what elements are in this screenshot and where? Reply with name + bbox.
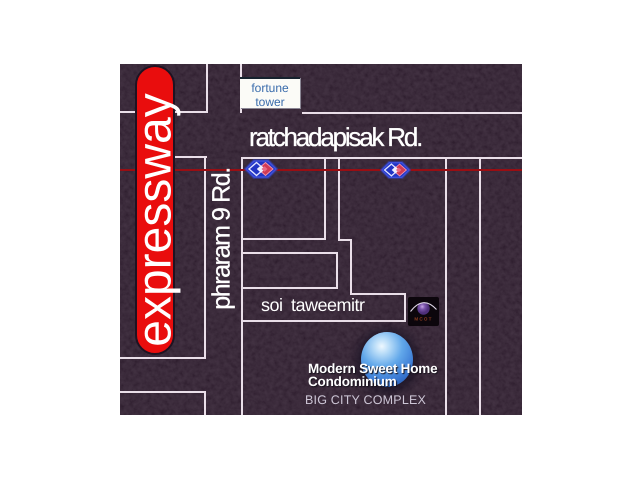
svg-text:MCOT: MCOT (414, 317, 432, 322)
